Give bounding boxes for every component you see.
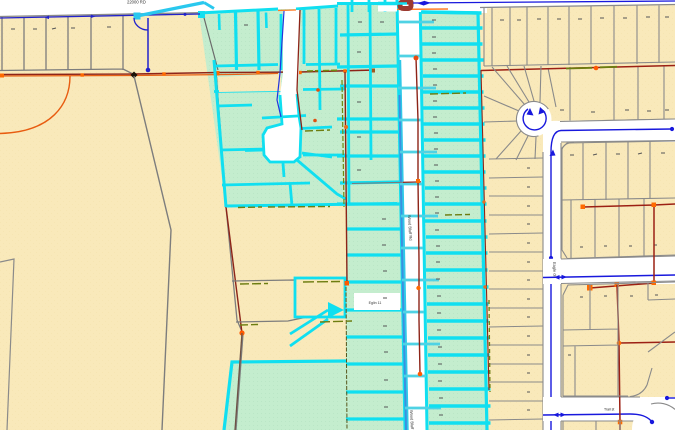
svg-text:Trail st: Trail st: [604, 408, 614, 412]
svg-text:22000 RD: 22000 RD: [127, 0, 146, 5]
svg-text:Eglin 11: Eglin 11: [369, 301, 382, 305]
svg-text:Wood Bluff: Wood Bluff: [409, 410, 415, 430]
svg-text:Eagle dr: Eagle dr: [552, 262, 558, 278]
